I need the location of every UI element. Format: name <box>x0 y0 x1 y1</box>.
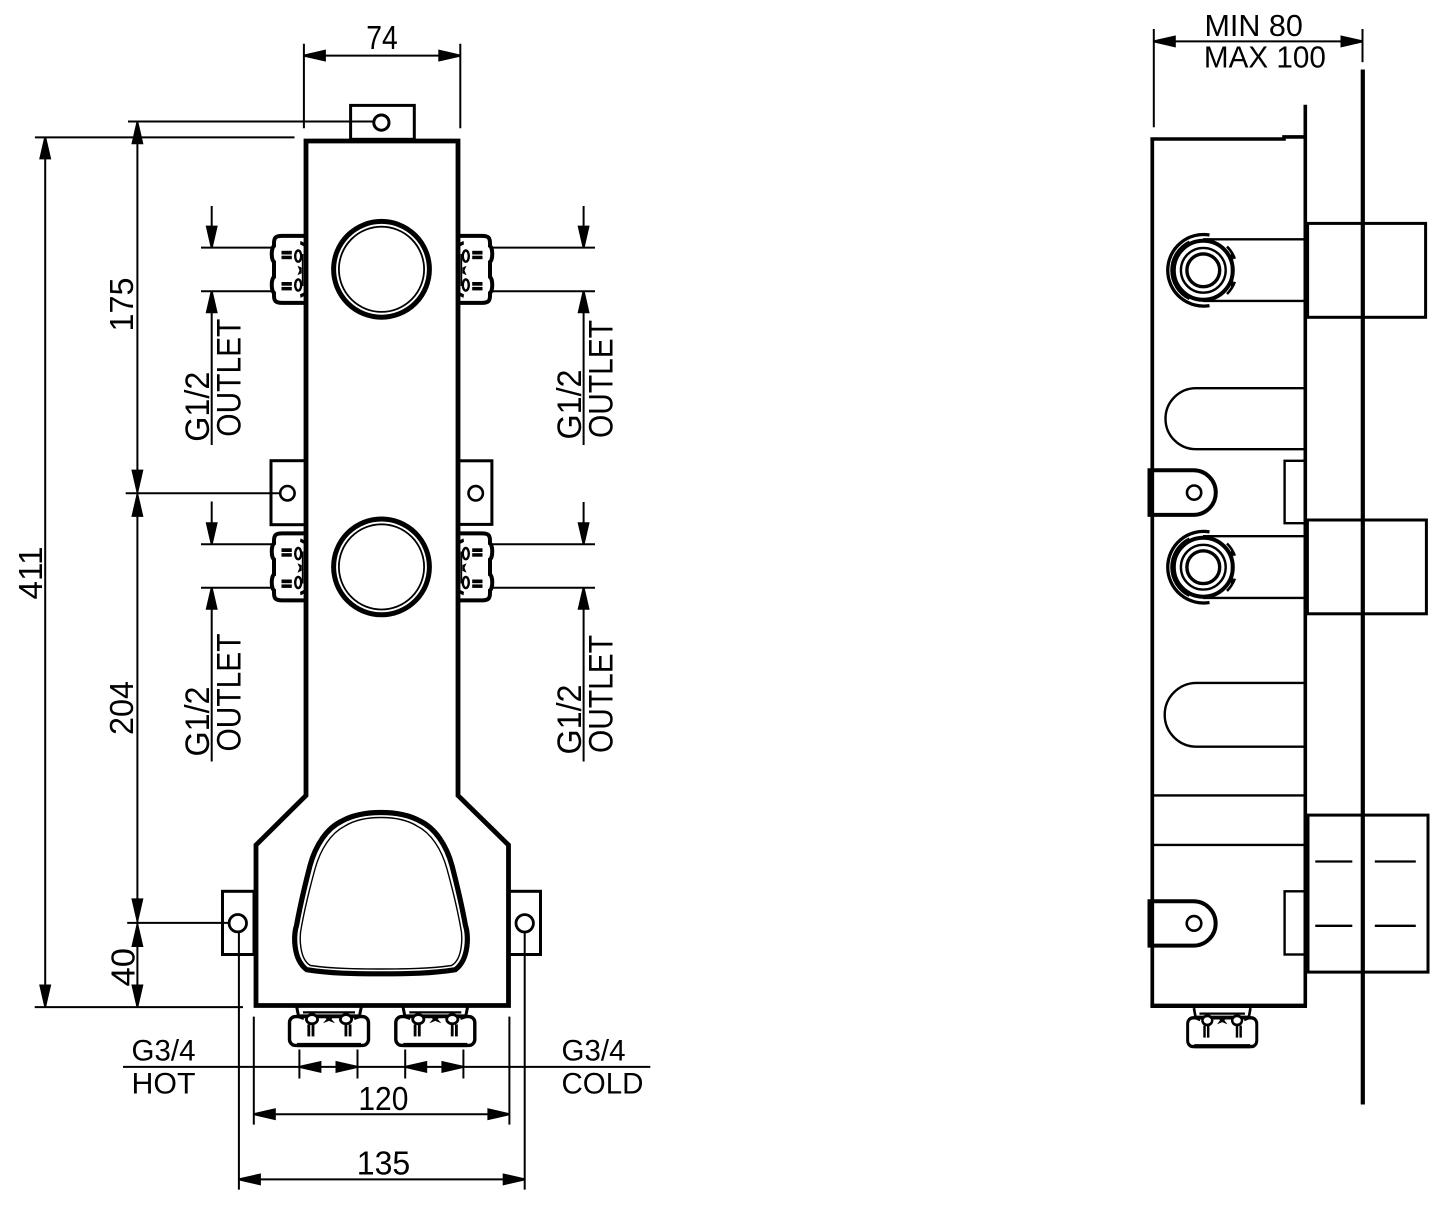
svg-text:G3/4: G3/4 <box>132 1035 196 1068</box>
svg-text:OUTLET: OUTLET <box>211 634 249 752</box>
svg-text:COLD: COLD <box>562 1068 644 1101</box>
svg-text:OUTLET: OUTLET <box>211 319 249 437</box>
svg-text:HOT: HOT <box>132 1068 196 1101</box>
svg-text:MIN 80: MIN 80 <box>1205 9 1303 43</box>
svg-text:OUTLET: OUTLET <box>582 320 620 438</box>
svg-text:40: 40 <box>105 948 142 987</box>
svg-text:411: 411 <box>12 547 49 600</box>
svg-text:175: 175 <box>103 278 140 332</box>
svg-text:74: 74 <box>366 19 398 56</box>
svg-text:MAX 100: MAX 100 <box>1204 41 1326 75</box>
svg-text:135: 135 <box>357 1145 411 1182</box>
svg-text:G3/4: G3/4 <box>562 1035 626 1068</box>
svg-text:120: 120 <box>358 1080 408 1117</box>
svg-text:204: 204 <box>103 681 140 735</box>
svg-text:OUTLET: OUTLET <box>582 635 620 753</box>
